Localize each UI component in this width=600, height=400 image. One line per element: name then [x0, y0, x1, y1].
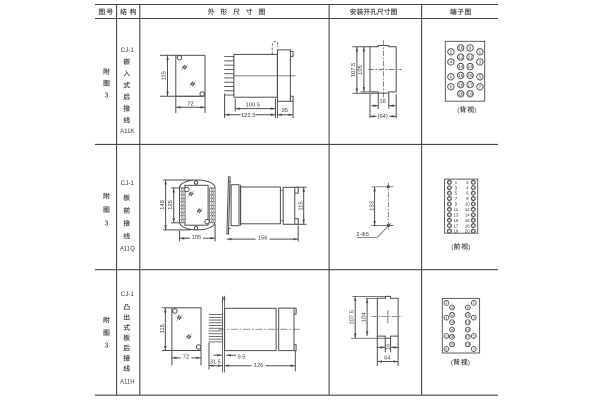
svg-text:8: 8: [445, 347, 447, 351]
svg-text:35: 35: [282, 108, 288, 114]
svg-text:125: 125: [168, 200, 174, 210]
svg-text:3: 3: [105, 343, 109, 350]
svg-text:16: 16: [465, 218, 470, 223]
svg-text:13: 13: [466, 320, 470, 324]
svg-text:20: 20: [458, 91, 464, 96]
svg-text:115: 115: [299, 201, 305, 210]
svg-text:18: 18: [458, 82, 464, 87]
svg-text:18: 18: [450, 335, 454, 339]
svg-text:115: 115: [162, 71, 168, 80]
svg-text:7: 7: [473, 347, 475, 351]
svg-text:10: 10: [458, 46, 464, 51]
svg-text:72: 72: [187, 102, 193, 108]
svg-text:4: 4: [445, 316, 447, 320]
svg-text:17: 17: [468, 82, 474, 87]
svg-text:2: 2: [445, 301, 447, 305]
svg-text:64: 64: [384, 355, 391, 361]
svg-text:31.5: 31.5: [210, 360, 221, 366]
svg-text:100.5: 100.5: [246, 103, 261, 109]
svg-text:105: 105: [358, 65, 364, 75]
svg-text:17: 17: [454, 223, 459, 228]
svg-text:): ): [474, 107, 476, 114]
svg-text:12: 12: [465, 207, 470, 212]
svg-text:148: 148: [160, 200, 166, 210]
svg-text:15: 15: [454, 218, 459, 223]
svg-text:115: 115: [160, 324, 166, 333]
svg-text:104: 104: [362, 312, 368, 322]
svg-text:16: 16: [458, 73, 464, 78]
svg-text:19: 19: [454, 229, 459, 234]
svg-text:156: 156: [258, 236, 268, 242]
svg-text:12: 12: [450, 313, 454, 317]
svg-text:3: 3: [105, 221, 109, 228]
svg-text:CJ-1: CJ-1: [121, 180, 135, 187]
svg-text:14: 14: [450, 320, 454, 324]
svg-text:20: 20: [465, 229, 470, 234]
svg-text:107.5: 107.5: [351, 63, 357, 78]
svg-text:16: 16: [385, 344, 391, 350]
svg-text:10: 10: [450, 306, 454, 310]
svg-text:9.5: 9.5: [237, 355, 245, 361]
svg-text:1: 1: [473, 301, 475, 305]
svg-text:(64): (64): [378, 114, 388, 120]
svg-text:5: 5: [473, 334, 475, 338]
svg-text:126: 126: [254, 363, 264, 369]
svg-text:72: 72: [183, 355, 189, 361]
svg-text:9: 9: [467, 306, 469, 310]
svg-text:12: 12: [458, 55, 464, 60]
svg-text:14: 14: [458, 64, 464, 69]
svg-text:3: 3: [105, 93, 109, 100]
svg-text:15: 15: [466, 328, 470, 332]
svg-text:2-Φ5: 2-Φ5: [356, 232, 369, 238]
svg-text:A11Q: A11Q: [120, 247, 135, 253]
svg-text:): ): [468, 360, 470, 367]
svg-text:A11K: A11K: [120, 129, 134, 135]
svg-text:13: 13: [454, 212, 459, 217]
svg-text:16: 16: [450, 328, 454, 332]
svg-text:3: 3: [473, 316, 475, 320]
svg-text:11: 11: [466, 313, 470, 317]
svg-text:15: 15: [468, 73, 474, 78]
svg-text:19: 19: [468, 91, 474, 96]
svg-text:107.5: 107.5: [350, 310, 356, 325]
svg-text:): ): [468, 244, 470, 251]
svg-text:11: 11: [468, 55, 473, 60]
svg-text:6: 6: [445, 334, 447, 338]
svg-text:17: 17: [466, 335, 470, 339]
svg-text:105: 105: [192, 235, 202, 241]
svg-text:133: 133: [369, 201, 375, 211]
svg-text:19: 19: [466, 343, 470, 347]
svg-text:16: 16: [379, 99, 385, 105]
svg-text:10: 10: [465, 202, 470, 207]
svg-text:18: 18: [465, 223, 470, 228]
svg-text:CJ-1: CJ-1: [121, 291, 135, 298]
svg-text:13: 13: [468, 64, 474, 69]
svg-text:A11H: A11H: [120, 380, 135, 386]
svg-text:122.5: 122.5: [241, 113, 256, 119]
svg-text:CJ-1: CJ-1: [121, 47, 135, 54]
svg-text:20: 20: [450, 343, 454, 347]
svg-text:14: 14: [465, 212, 470, 217]
svg-text:11: 11: [454, 207, 459, 212]
